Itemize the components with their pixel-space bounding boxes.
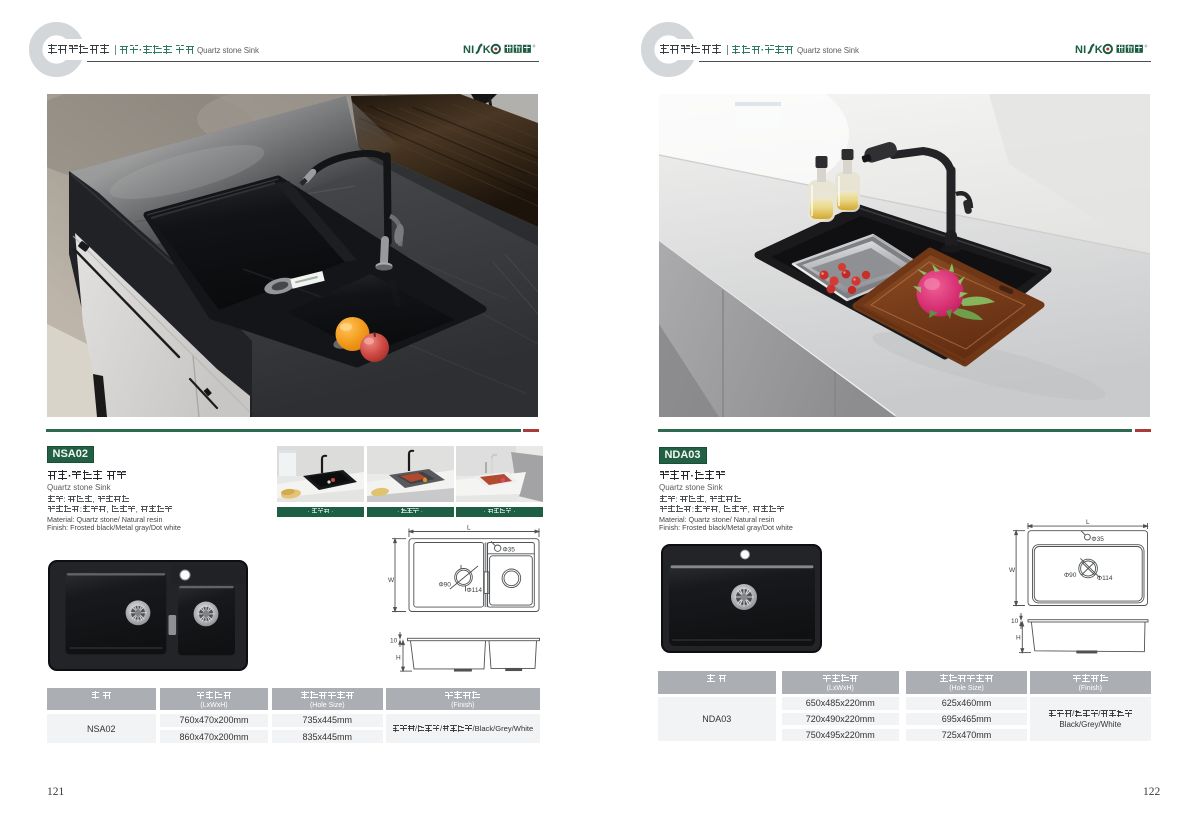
svg-text:H: H [1016, 635, 1021, 642]
svg-text:Φ90: Φ90 [1064, 572, 1077, 579]
svg-text:®: ® [533, 44, 536, 49]
svg-text:NI: NI [1075, 44, 1086, 56]
svg-text:10: 10 [390, 637, 398, 644]
svg-text:Φ90: Φ90 [439, 582, 452, 589]
svg-text:K: K [483, 44, 491, 56]
svg-text:Φ114: Φ114 [467, 587, 483, 594]
svg-text:H: H [396, 655, 401, 662]
svg-text:Φ35: Φ35 [1091, 536, 1104, 543]
svg-text:L: L [467, 525, 471, 532]
svg-text:Φ35: Φ35 [503, 547, 516, 554]
svg-text:L: L [1086, 519, 1090, 526]
svg-text:10: 10 [1011, 618, 1019, 625]
svg-text:®: ® [1145, 44, 1148, 49]
svg-text:W: W [388, 577, 395, 584]
svg-text:W: W [1009, 567, 1016, 574]
svg-text:NI: NI [463, 44, 474, 56]
svg-text:K: K [1095, 44, 1103, 56]
svg-text:Φ114: Φ114 [1097, 575, 1113, 582]
